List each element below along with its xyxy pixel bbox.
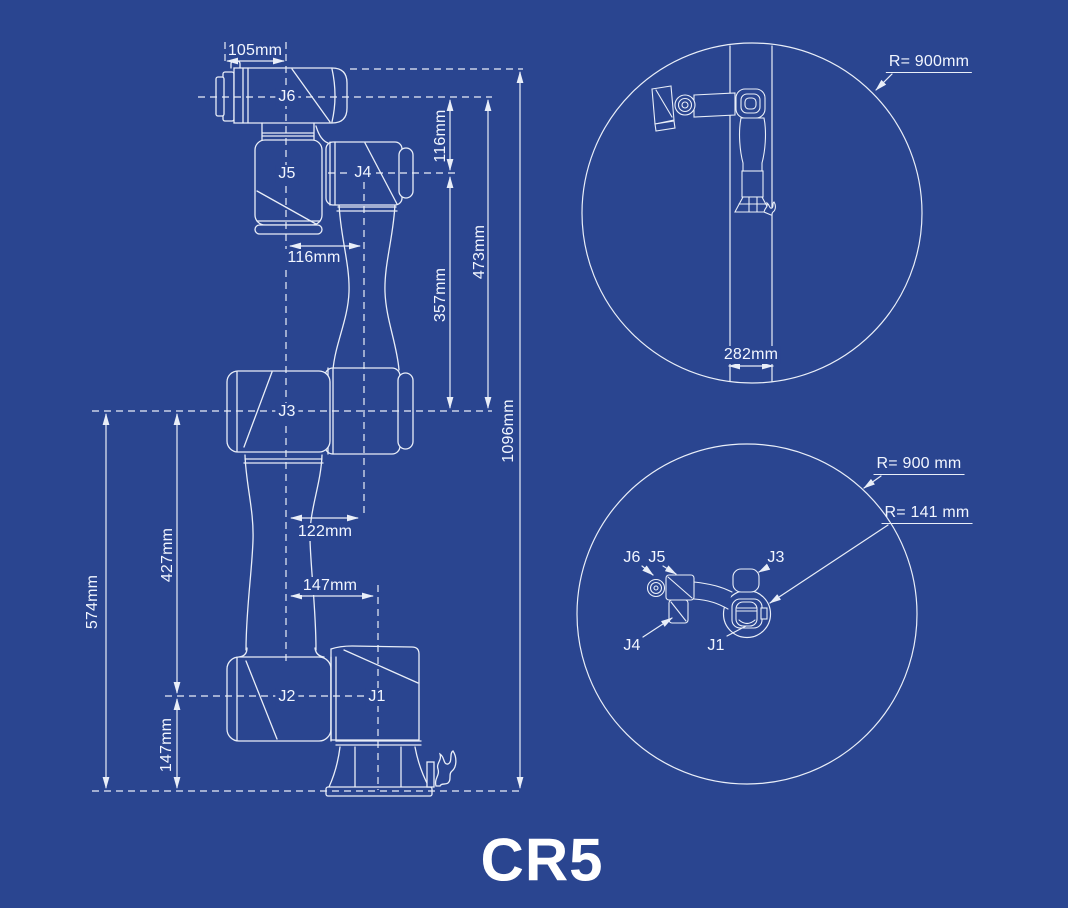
joint-label-j1: J1 bbox=[365, 688, 388, 706]
side-view-robot bbox=[216, 61, 456, 796]
j5-housing bbox=[255, 140, 322, 234]
robot-base bbox=[326, 741, 456, 796]
joint-label-j5: J5 bbox=[275, 165, 298, 183]
front-282mm-label: 282mm bbox=[721, 346, 781, 364]
joint-label-j4: J4 bbox=[351, 164, 374, 182]
top-r900-leader bbox=[864, 476, 881, 488]
top-joint-label-j3: J3 bbox=[764, 549, 787, 567]
top-joint-label-j4: J4 bbox=[620, 637, 643, 655]
top-r141-label: R= 141 mm bbox=[882, 504, 973, 524]
top-joint-label-j1: J1 bbox=[704, 637, 727, 655]
dim-116mm-horizontal: 116mm bbox=[284, 249, 343, 267]
dim-473mm: 473mm bbox=[471, 222, 489, 282]
upper-arm-link bbox=[333, 203, 399, 370]
cable-gland-glyph bbox=[436, 751, 456, 786]
dim-574mm: 574mm bbox=[84, 572, 102, 632]
top-r141-leader bbox=[770, 525, 888, 603]
top-joint-label-j5: J5 bbox=[645, 549, 668, 567]
top-view-robot bbox=[648, 569, 768, 628]
base-connector bbox=[427, 762, 434, 787]
forearm-link bbox=[239, 455, 324, 657]
model-title: CR5 bbox=[480, 826, 603, 895]
dim-122mm: 122mm bbox=[295, 523, 355, 541]
front-r900-label: R= 900mm bbox=[886, 53, 972, 73]
joint-label-j3: J3 bbox=[275, 403, 298, 421]
front-reach-view bbox=[582, 43, 922, 383]
top-r900-label: R= 900 mm bbox=[874, 455, 965, 475]
cr5-dimension-diagram: 105mm 116mm 116mm 357mm 473mm 1096mm 122… bbox=[0, 0, 1068, 908]
top-joint-label-j6: J6 bbox=[620, 549, 643, 567]
dim-116mm-vertical: 116mm bbox=[432, 106, 450, 165]
front-view-robot bbox=[652, 86, 775, 215]
top-reach-view bbox=[577, 444, 917, 784]
joint-label-j2: J2 bbox=[275, 688, 298, 706]
dim-105mm: 105mm bbox=[225, 42, 285, 60]
dim-147mm-horizontal: 147mm bbox=[300, 577, 360, 595]
joint-label-j6: J6 bbox=[275, 88, 298, 106]
front-r900-leader bbox=[876, 74, 892, 90]
dim-427mm: 427mm bbox=[159, 525, 177, 585]
dim-357mm: 357mm bbox=[432, 265, 450, 325]
dim-1096mm: 1096mm bbox=[500, 396, 518, 465]
dim-147mm-vertical: 147mm bbox=[158, 715, 176, 775]
